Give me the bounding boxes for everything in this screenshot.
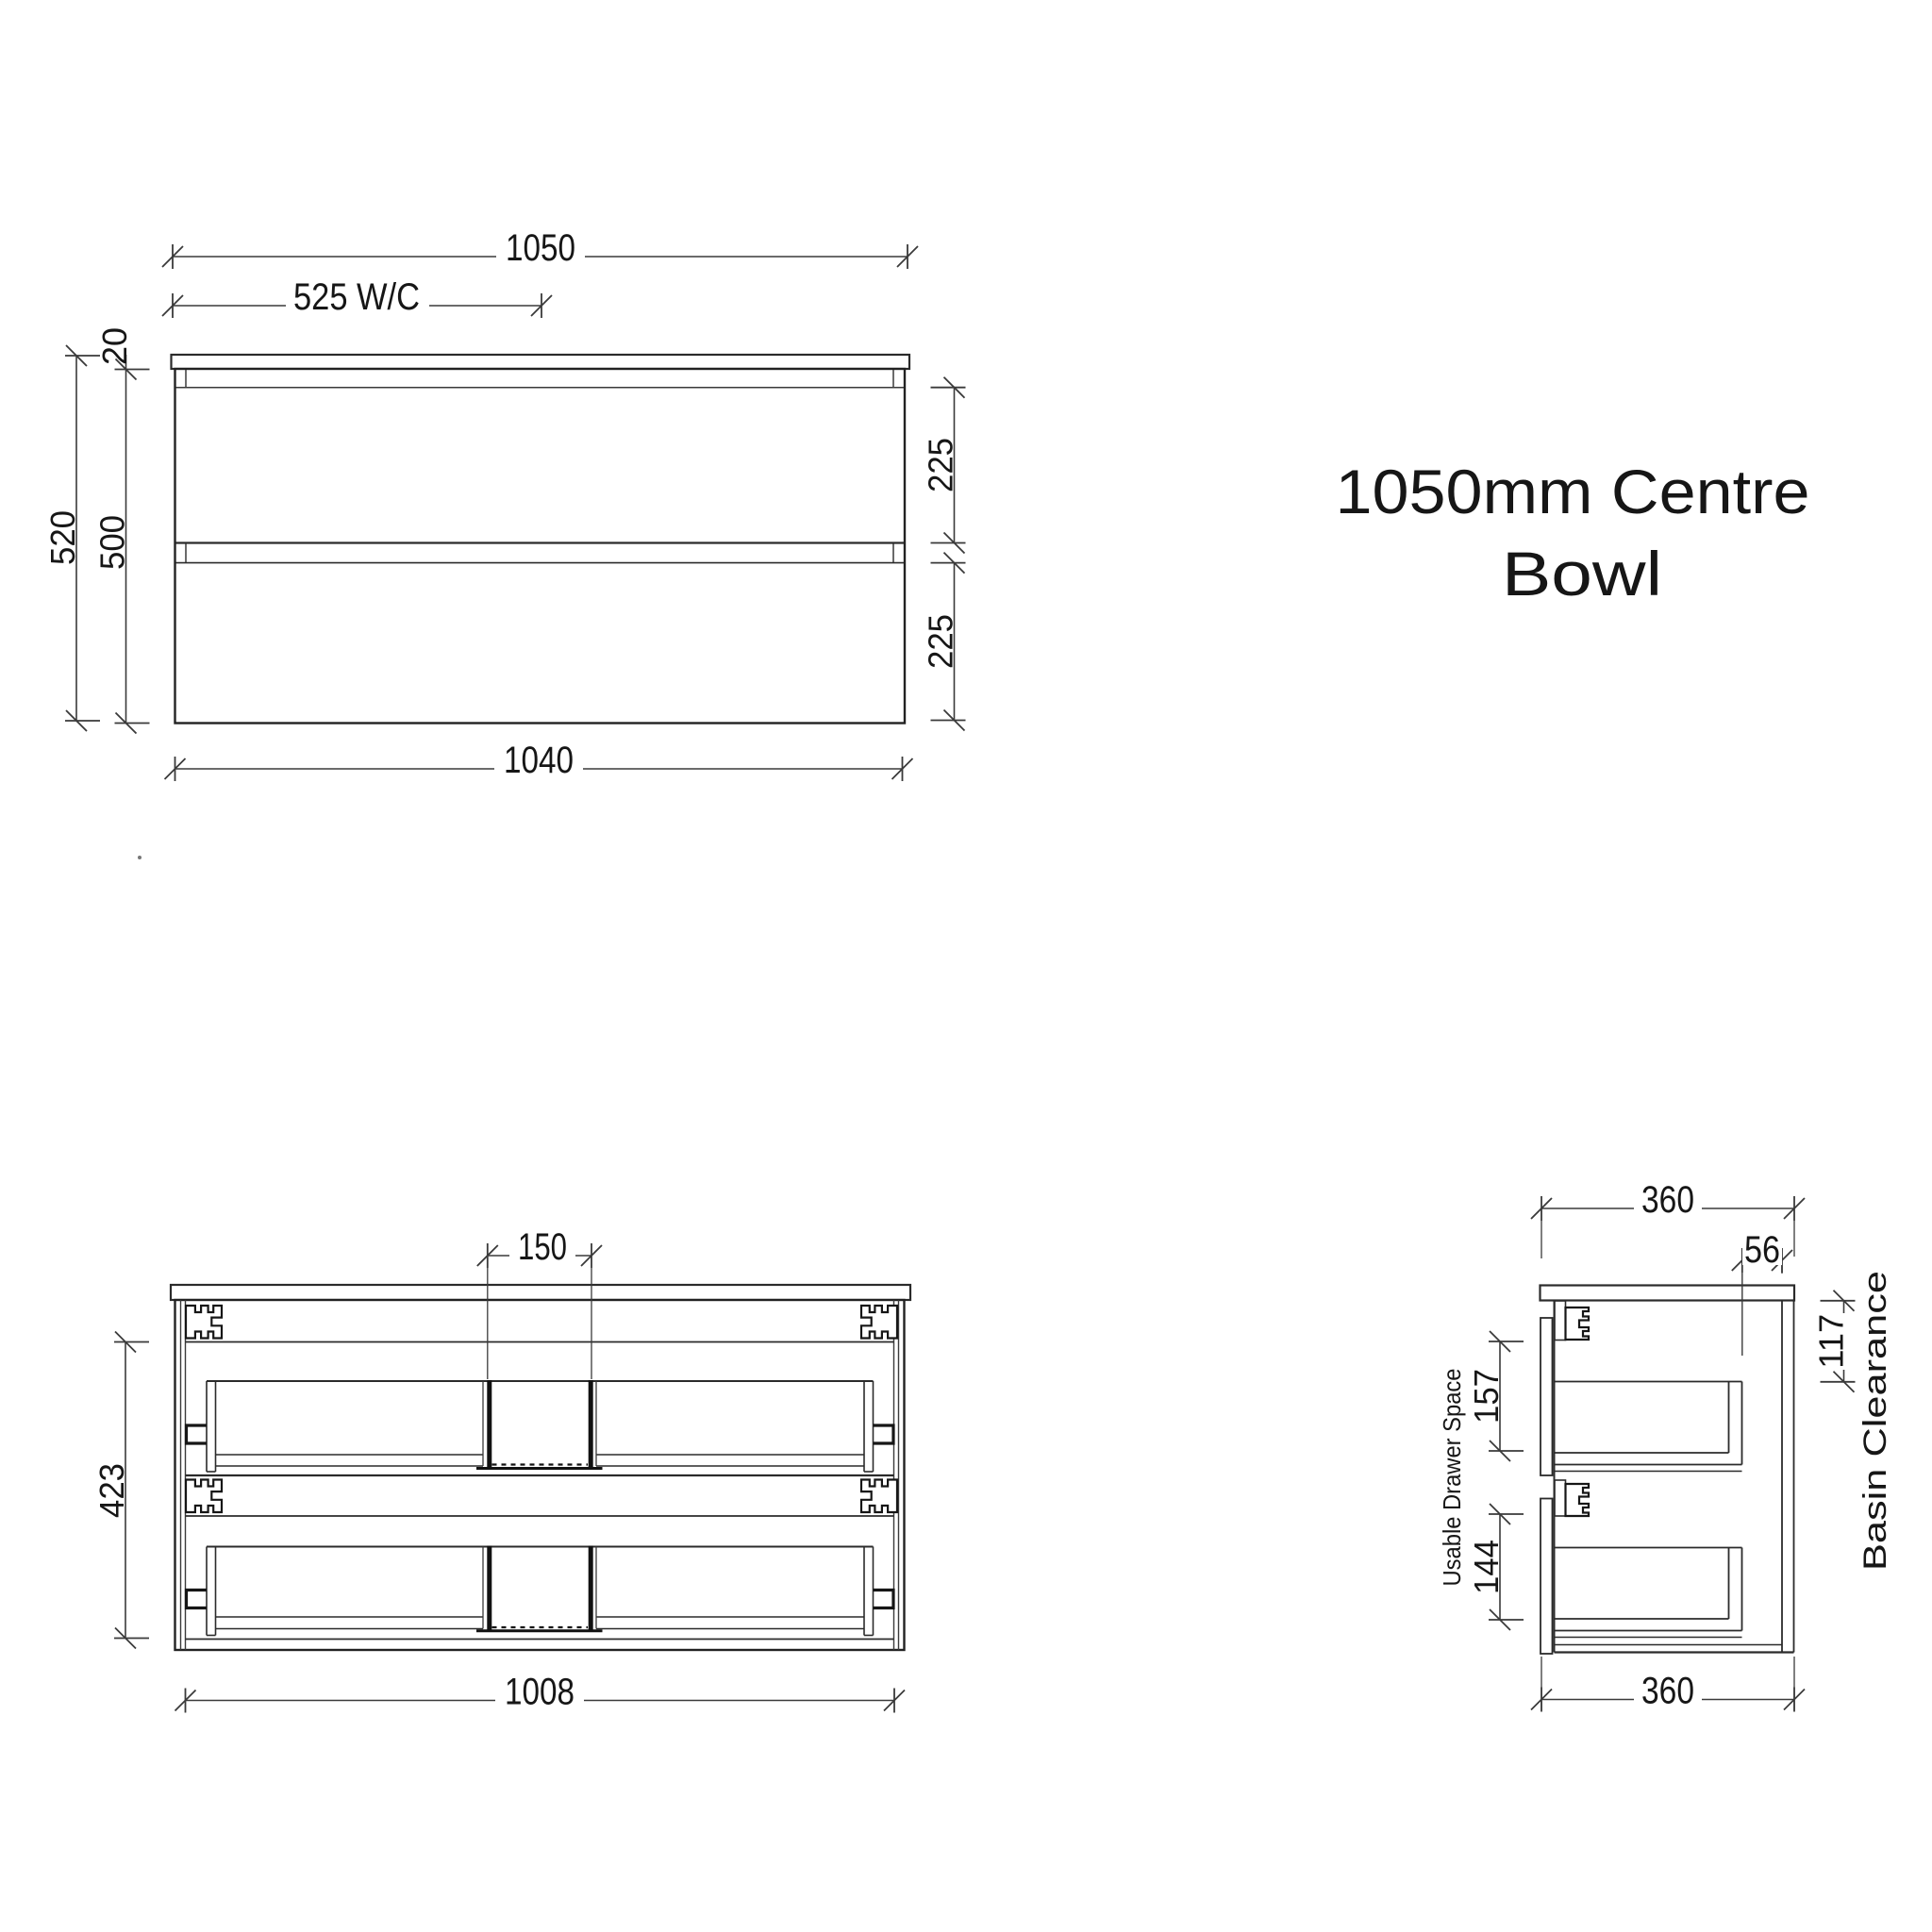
svg-text:520: 520 <box>43 510 82 565</box>
svg-text:20: 20 <box>95 327 134 365</box>
svg-text:Bowl: Bowl <box>1502 539 1662 608</box>
svg-text:Usable Drawer Space: Usable Drawer Space <box>1438 1369 1466 1587</box>
svg-text:360: 360 <box>1641 1671 1694 1712</box>
svg-text:225: 225 <box>922 438 960 492</box>
svg-text:360: 360 <box>1641 1179 1694 1221</box>
svg-text:1040: 1040 <box>504 740 574 781</box>
svg-text:1050mm Centre: 1050mm Centre <box>1336 457 1810 526</box>
svg-text:1008: 1008 <box>505 1672 575 1713</box>
svg-text:117: 117 <box>1812 1314 1851 1369</box>
svg-text:157: 157 <box>1467 1369 1506 1424</box>
svg-text:500: 500 <box>93 515 132 570</box>
svg-text:150: 150 <box>518 1226 567 1268</box>
svg-text:Basin Clearance: Basin Clearance <box>1857 1271 1893 1571</box>
svg-text:423: 423 <box>92 1463 131 1518</box>
svg-text:225: 225 <box>922 614 960 669</box>
svg-text:144: 144 <box>1467 1540 1506 1594</box>
svg-text:56: 56 <box>1744 1229 1780 1271</box>
svg-text:525 W/C: 525 W/C <box>293 276 420 318</box>
svg-text:1050: 1050 <box>506 227 575 269</box>
